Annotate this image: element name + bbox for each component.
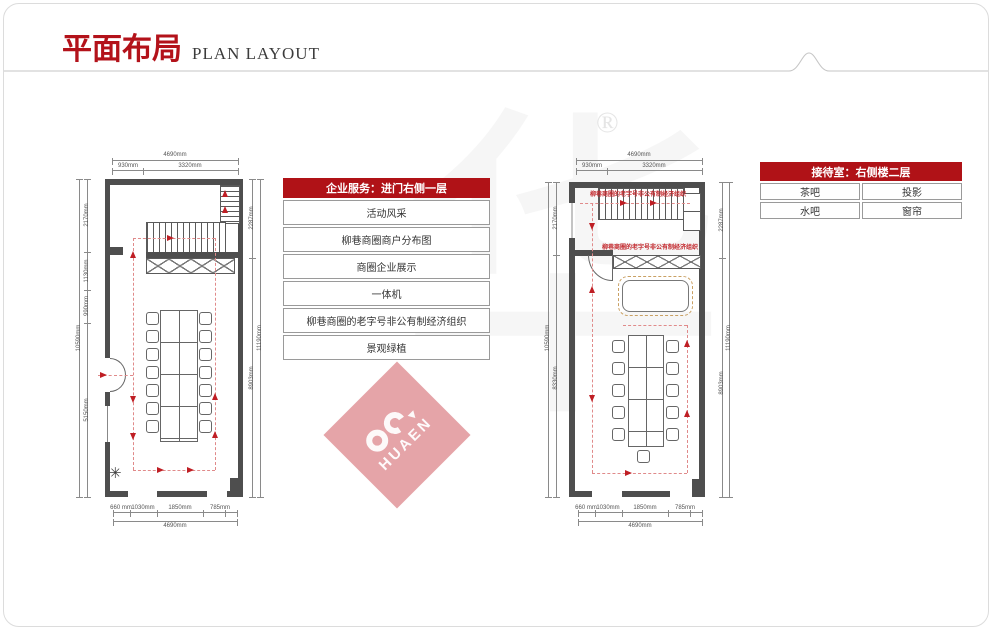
service-table-row: 景观绿植 — [283, 335, 490, 360]
window — [569, 203, 575, 238]
dim-label: 785mm — [210, 505, 230, 511]
window — [105, 406, 110, 442]
service-table-row: 一体机 — [283, 281, 490, 306]
door-leaf-bottom — [110, 375, 126, 392]
dim-label: 8330mm — [553, 366, 559, 389]
chair — [666, 362, 679, 375]
dimension-bottom-total — [113, 521, 237, 522]
chair — [637, 450, 650, 463]
chair — [146, 348, 159, 361]
arrow-down-icon — [130, 396, 136, 403]
chair — [199, 366, 212, 379]
dim-label: 4690mm — [163, 152, 186, 158]
reception-cell: 水吧 — [760, 202, 860, 219]
dim-label: 11190mm — [726, 325, 732, 351]
wall-step — [230, 478, 243, 491]
dimension-top-segments — [112, 170, 238, 171]
dimension-bottom-total — [578, 521, 702, 522]
arrow-right-icon — [100, 372, 107, 378]
dimension-top-segments — [576, 170, 702, 171]
chair — [146, 312, 159, 325]
chair — [612, 340, 625, 353]
floor-plan-left: 4690mm 930mm 3320mm — [62, 148, 292, 548]
dim-label: 2287mm — [249, 206, 255, 229]
service-table-header: 企业服务：进门右侧一层 — [283, 178, 490, 198]
arrow-down-icon — [130, 433, 136, 440]
dim-label: 660 mm — [110, 505, 132, 511]
wall-bottom-left — [105, 491, 128, 497]
dim-label: 785mm — [675, 505, 695, 511]
wall-bottom-right — [692, 491, 705, 497]
dimension-bottom-segments — [578, 512, 702, 513]
dim-label: 11190mm — [257, 325, 263, 351]
service-table-row: 商圈企业展示 — [283, 254, 490, 279]
arrow-right-icon — [187, 467, 194, 473]
chair — [666, 428, 679, 441]
huaen-watermark: HUAEN — [323, 361, 470, 508]
service-table-row: 柳巷商圈商户分布图 — [283, 227, 490, 252]
arrow-up-icon — [684, 340, 690, 347]
dim-label: 4690mm — [628, 523, 651, 529]
chair — [612, 384, 625, 397]
reception-table: 接待室：右侧楼二层 茶吧 投影 水吧 窗帘 — [760, 162, 962, 219]
dim-label: 1030mm — [596, 505, 619, 511]
plant-icon: ✳ — [109, 466, 122, 481]
arrow-up-icon — [222, 190, 228, 197]
path-top — [133, 238, 215, 239]
chair — [146, 420, 159, 433]
dim-label: 1850mm — [633, 505, 656, 511]
dimension-left-segments — [87, 179, 88, 497]
arrow-right-icon — [620, 200, 627, 206]
arrow-right-icon — [625, 470, 632, 476]
dimension-top-total — [112, 160, 238, 161]
chair — [199, 384, 212, 397]
dim-label: 8903mm — [249, 366, 255, 389]
chair — [199, 312, 212, 325]
divider-line — [4, 50, 988, 74]
plan-layout-slide: 平面布局PLAN LAYOUT 华 ® 4690mm 930mm 3320mm — [0, 0, 992, 630]
conference-table — [160, 310, 198, 442]
arrow-up-icon — [212, 393, 218, 400]
chair — [146, 330, 159, 343]
wall-stub — [105, 247, 123, 255]
chair — [199, 330, 212, 343]
chair — [146, 384, 159, 397]
dim-label: 660 mm — [575, 505, 597, 511]
arrow-down-icon — [589, 395, 595, 402]
dim-label: 2170mm — [553, 206, 559, 229]
wall-bottom-left — [569, 491, 592, 497]
arrow-up-icon — [684, 410, 690, 417]
bridge-hatch — [146, 258, 235, 274]
dim-label: 930mm — [118, 163, 138, 169]
dim-label: 3320mm — [642, 163, 665, 169]
chair — [666, 384, 679, 397]
stair-landing-box — [683, 211, 701, 231]
path-bottom — [133, 470, 215, 471]
chair — [199, 402, 212, 415]
chair — [146, 366, 159, 379]
path-bottom — [592, 473, 687, 474]
dimension-bottom-segments — [113, 512, 237, 513]
reception-cell: 茶吧 — [760, 183, 860, 200]
service-table: 企业服务：进门右侧一层 活动风采 柳巷商圈商户分布图 商圈企业展示 一体机 柳巷… — [283, 178, 490, 360]
path-right — [687, 325, 688, 473]
arrow-up-icon — [212, 431, 218, 438]
floor-plan-right: 4690mm 930mm 3320mm 柳巷商圈的老字号非公有制经济组织 柳巷商… — [540, 148, 770, 548]
dim-label: 5150mm — [84, 398, 90, 421]
dim-label: 4690mm — [627, 152, 650, 158]
arrow-up-icon — [130, 251, 136, 258]
path-mid — [623, 325, 687, 326]
arrow-right-icon — [167, 235, 174, 241]
dim-label: 4690mm — [163, 523, 186, 529]
dim-label: 1130mm — [84, 260, 90, 283]
chair — [612, 362, 625, 375]
dim-label: 3320mm — [178, 163, 201, 169]
service-table-row: 活动风采 — [283, 200, 490, 225]
dim-label: 8903mm — [719, 371, 725, 394]
dim-label: 990mm — [84, 296, 90, 316]
dim-label: 10590mm — [545, 325, 551, 352]
annotation-label: 柳巷商圈的老字号非公有制经济组织 — [590, 189, 686, 198]
dim-label: 2170mm — [84, 203, 90, 226]
chair — [199, 420, 212, 433]
registered-mark-watermark: ® — [596, 106, 619, 140]
path-left — [592, 203, 593, 473]
dimension-top-total — [576, 160, 702, 161]
wall-bottom-mid — [622, 491, 670, 497]
path-stairs — [580, 203, 690, 204]
dim-label: 930mm — [582, 163, 602, 169]
dim-label: 10590mm — [76, 325, 82, 352]
wall-step — [692, 479, 705, 491]
arrow-right-icon — [157, 467, 164, 473]
dim-label: 1030mm — [131, 505, 154, 511]
reception-cell: 投影 — [862, 183, 962, 200]
dim-label: 1850mm — [168, 505, 191, 511]
wall-right — [238, 179, 243, 497]
wall-bottom-mid — [157, 491, 207, 497]
reception-cell: 窗帘 — [862, 202, 962, 219]
arrow-up-icon — [589, 286, 595, 293]
door-leaf-top — [110, 358, 126, 375]
wall-bottom-right — [227, 491, 243, 497]
reception-table-header: 接待室：右侧楼二层 — [760, 162, 962, 181]
arrow-down-icon — [589, 223, 595, 230]
rounded-table — [622, 280, 689, 312]
chair — [666, 340, 679, 353]
arrow-up-icon — [222, 206, 228, 213]
chair — [612, 428, 625, 441]
chair — [612, 406, 625, 419]
dim-label: 2287mm — [719, 208, 725, 231]
chair — [199, 348, 212, 361]
annotation-label: 柳巷商圈的老字号非公有制经济组织 — [602, 242, 698, 251]
chair — [146, 402, 159, 415]
bridge-hatch — [613, 255, 701, 269]
wall-left-upper — [105, 179, 110, 358]
chair — [666, 406, 679, 419]
arrow-right-icon — [650, 200, 657, 206]
conference-table — [628, 335, 664, 447]
service-table-row: 柳巷商圈的老字号非公有制经济组织 — [283, 308, 490, 333]
